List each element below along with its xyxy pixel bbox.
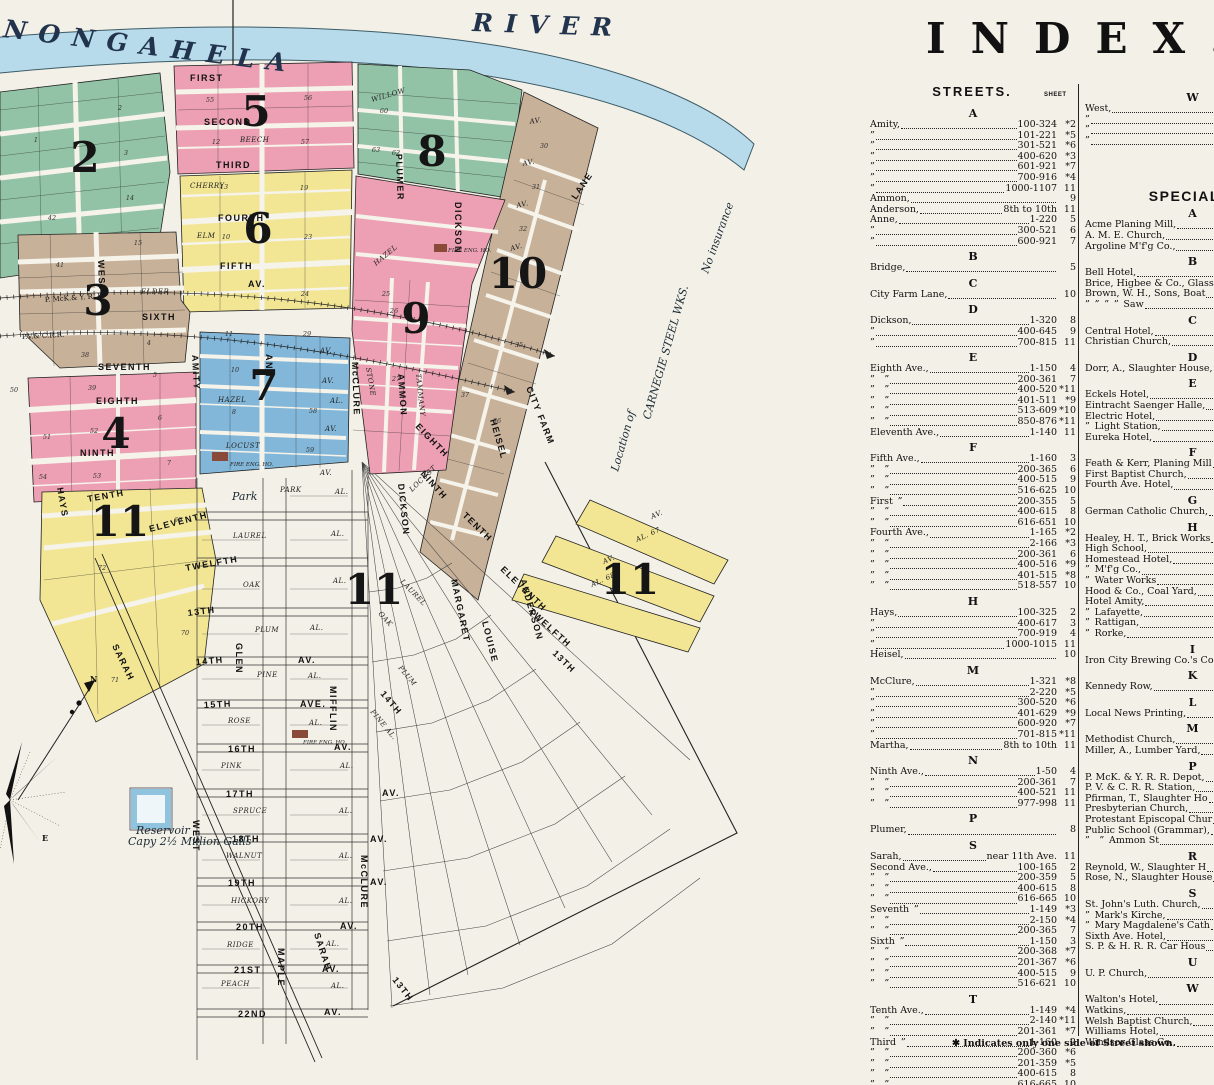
map-label: AL. bbox=[309, 624, 323, 632]
map-label: 62 bbox=[392, 149, 400, 157]
index-row: ”300-5216 bbox=[870, 226, 1076, 237]
index-letter: P bbox=[1085, 760, 1214, 773]
map-label: GLEN bbox=[234, 643, 244, 674]
map-label: DICKSON bbox=[453, 202, 463, 254]
map-label: ELDER bbox=[140, 288, 169, 296]
index-row: ” ”616-66510 bbox=[870, 1080, 1076, 1085]
map-label: 58 bbox=[309, 407, 317, 415]
index-row: ” ”518-55710 bbox=[870, 581, 1076, 592]
map-label: 71 bbox=[111, 676, 119, 684]
map-label: 19 bbox=[300, 184, 308, 192]
map-label: AL. bbox=[338, 807, 352, 815]
index-row: St. John's Luth. Church, bbox=[1085, 900, 1214, 911]
map-label: 12 bbox=[212, 138, 220, 146]
map-label: 7 bbox=[249, 361, 278, 410]
map-label: SARAH bbox=[312, 932, 334, 973]
map-label: 38 bbox=[81, 351, 89, 359]
map-label: SPRUCE bbox=[233, 807, 267, 815]
map-label: 11 bbox=[225, 330, 233, 338]
map-label: HICKORY bbox=[230, 897, 270, 905]
map-label: FIRE ENG. HO. bbox=[302, 740, 346, 746]
map-label: 24 bbox=[300, 290, 309, 298]
index-letter: H bbox=[1085, 521, 1214, 534]
index-letter: T bbox=[870, 993, 1076, 1006]
map-label: 3 bbox=[124, 149, 128, 157]
map-label: MAPLE bbox=[276, 948, 286, 987]
index-row: U. P. Church, bbox=[1085, 969, 1214, 980]
index-row: ”701-815*11 bbox=[870, 730, 1076, 741]
map-label: AL. bbox=[338, 897, 352, 905]
index-row: Christian Church, bbox=[1085, 337, 1214, 348]
map-label: 13TH bbox=[551, 648, 578, 675]
map-label: PEACH bbox=[220, 980, 250, 988]
specials-header: SPECIALS. bbox=[1085, 188, 1214, 204]
index-letter: D bbox=[1085, 351, 1214, 364]
map-label: EIGHTH bbox=[96, 396, 139, 406]
index-row: Fourth Ave. Hotel, bbox=[1085, 480, 1214, 491]
map-label: 54 bbox=[39, 473, 47, 481]
map-label: 39 bbox=[88, 384, 96, 392]
map-label: PLUMER bbox=[394, 154, 406, 201]
index-row: German Catholic Church, bbox=[1085, 507, 1214, 518]
index-row: Bridge,5 bbox=[870, 263, 1076, 274]
map-label: 59 bbox=[306, 446, 314, 454]
map-label: 11 bbox=[91, 497, 149, 546]
map-label: 8 bbox=[417, 127, 446, 176]
index-row: ” Rorke, bbox=[1085, 629, 1214, 640]
map-label: RIDGE bbox=[226, 941, 254, 949]
map-label: 23 bbox=[303, 233, 312, 241]
map-label: 2 bbox=[117, 104, 122, 112]
index-letter: S bbox=[1085, 887, 1214, 900]
map-label: HAZEL bbox=[217, 396, 246, 404]
map-label: E bbox=[42, 833, 48, 843]
map-label: AL. bbox=[325, 940, 339, 948]
column-divider bbox=[1078, 84, 1079, 1036]
map-label: 5 bbox=[153, 371, 157, 379]
index-row: Eintracht Saenger Halle, bbox=[1085, 401, 1214, 412]
map-label: 29 bbox=[302, 330, 311, 338]
index-row: Dorr, A., Slaughter House, bbox=[1085, 364, 1214, 375]
map-label: 26 bbox=[389, 307, 398, 315]
index-row: ”400-6459 bbox=[870, 327, 1076, 338]
map-label: AL. bbox=[330, 982, 344, 990]
index-row: Iron City Brewing Co.'s Co bbox=[1085, 656, 1214, 667]
index-row: ” ”977-99811 bbox=[870, 799, 1076, 810]
map-label: AV. bbox=[649, 509, 664, 522]
specials-index-column: WWest,””” SPECIALS. AAcme Planing Mill,A… bbox=[1085, 88, 1214, 1048]
index-row: ” bbox=[1085, 125, 1214, 136]
index-row: ” ”2-166*3 bbox=[870, 539, 1076, 550]
map-label: WALNUT bbox=[226, 852, 263, 860]
map-label: AL. bbox=[334, 488, 348, 496]
map-label: THIRD bbox=[216, 160, 251, 170]
index-letter: M bbox=[870, 664, 1076, 677]
map-label: AV. bbox=[321, 377, 334, 385]
map-label: Park bbox=[231, 490, 258, 503]
index-row: Hays,100-3252 bbox=[870, 608, 1076, 619]
map-label: 55 bbox=[206, 96, 214, 104]
map-label: FIRE ENG. HO. bbox=[447, 248, 491, 254]
sanborn-map-page: MONONGAHELARIVERFIRSTSECONDTHIRDFOURTHFI… bbox=[0, 0, 1214, 1085]
map-label: 6 bbox=[158, 414, 162, 422]
map-label: 53 bbox=[93, 472, 101, 480]
map-label: 16TH bbox=[228, 744, 256, 754]
map-label: AL. bbox=[339, 762, 353, 770]
map-label: 52 bbox=[90, 427, 98, 435]
map-label: 6 bbox=[243, 204, 272, 253]
map-label: 15TH bbox=[204, 699, 233, 710]
map-label: LOCUST bbox=[225, 442, 261, 450]
index-row: McClure,1-321*8 bbox=[870, 677, 1076, 688]
index-letter: R bbox=[1085, 850, 1214, 863]
index-row: ” ”201-361*7 bbox=[870, 1027, 1076, 1038]
map-label: AV. bbox=[248, 279, 266, 289]
index-row: Kennedy Row, bbox=[1085, 682, 1214, 693]
index-row: ” ”201-367*6 bbox=[870, 958, 1076, 969]
map-label: 21ST bbox=[234, 965, 262, 975]
map-label: 4 bbox=[146, 339, 151, 347]
map-label: 41 bbox=[55, 261, 64, 269]
map-label: AV. bbox=[324, 425, 337, 433]
sheet-column-header: SHEET bbox=[1044, 92, 1067, 98]
map-label: AMITY bbox=[190, 355, 202, 391]
map-label: 8 bbox=[232, 408, 236, 416]
index-row: ”700-916*4 bbox=[870, 173, 1076, 184]
map-label: 2 bbox=[70, 133, 99, 182]
map-label: 30 bbox=[540, 142, 548, 150]
map-label: AV. bbox=[324, 1007, 342, 1017]
map-label: 56 bbox=[304, 94, 312, 102]
map-label: McCLURE bbox=[359, 855, 369, 909]
map-label: AL. bbox=[329, 397, 343, 405]
map-label: PINK bbox=[220, 762, 242, 770]
map-label: 32 bbox=[519, 225, 527, 233]
map-label: SIXTH bbox=[142, 312, 176, 322]
map-label: 5 bbox=[241, 87, 270, 136]
index-letter: U bbox=[1085, 956, 1214, 969]
index-row: ” bbox=[1085, 136, 1214, 147]
index-letter: L bbox=[1085, 696, 1214, 709]
map-label: 11 bbox=[601, 555, 659, 604]
index-letter: C bbox=[870, 277, 1076, 290]
map-label: 13 bbox=[220, 183, 228, 191]
map-label: MIFFLIN bbox=[328, 686, 338, 732]
map-label: FIFTH bbox=[220, 261, 253, 271]
map-label: LAUREL bbox=[232, 532, 267, 540]
index-row: Eureka Hotel, bbox=[1085, 433, 1214, 444]
map-label: 37 bbox=[461, 391, 470, 399]
map-label: RIVER bbox=[471, 8, 625, 42]
map-label: 20TH bbox=[236, 922, 264, 932]
map-label: 15 bbox=[134, 239, 142, 247]
map-label: N bbox=[90, 674, 97, 684]
map-label: 14 bbox=[126, 194, 134, 202]
map-label: ELM bbox=[196, 232, 216, 240]
map-label: 1 bbox=[34, 136, 38, 144]
map-label: 10 bbox=[231, 366, 239, 374]
map-label: ROSE bbox=[227, 717, 251, 725]
map-label: McCLURE bbox=[350, 362, 362, 416]
map-label: 9 bbox=[401, 294, 430, 343]
map-label: 13TH bbox=[390, 975, 415, 1003]
map-label: AV. bbox=[298, 655, 316, 665]
map-label: AL. bbox=[330, 530, 344, 538]
index-row: Rose, N., Slaughter House bbox=[1085, 873, 1214, 884]
index-row: Miller, A., Lumber Yard, bbox=[1085, 746, 1214, 757]
map-label: 36 bbox=[493, 417, 501, 425]
map-label: PINE bbox=[256, 671, 278, 679]
map-label: 72 bbox=[98, 564, 106, 572]
index-row: ”600-9217 bbox=[870, 237, 1076, 248]
map-label: 3 bbox=[83, 276, 112, 325]
map-label: AV. bbox=[340, 921, 358, 931]
map-label: 50 bbox=[10, 386, 18, 394]
index-row: ” ” Ammon St bbox=[1085, 836, 1214, 847]
map-label: OAK bbox=[243, 581, 261, 589]
map-label: BEECH bbox=[239, 136, 270, 144]
map-label: 42 bbox=[47, 214, 56, 222]
map-label: 10 bbox=[222, 233, 230, 241]
map-label: 11 bbox=[345, 565, 403, 614]
index-row: Amity,100-324*2 bbox=[870, 120, 1076, 131]
index-row: West, bbox=[1085, 104, 1214, 115]
map-label: AL. bbox=[307, 672, 321, 680]
map-label: 51 bbox=[43, 433, 51, 441]
index-row: Protestant Episcopal Chur bbox=[1085, 815, 1214, 826]
map-label: FIRE ENG. HO. bbox=[229, 462, 273, 468]
index-row: Argoline M'f'g Co., bbox=[1085, 242, 1214, 253]
map-label: AV. bbox=[370, 834, 388, 844]
map-label: 17TH bbox=[226, 789, 254, 799]
index-row: A. M. E. Church, bbox=[1085, 231, 1214, 242]
map-label: 31 bbox=[532, 183, 540, 191]
map-label: CITY FARM bbox=[524, 385, 556, 446]
index-row: ”700-81511 bbox=[870, 338, 1076, 349]
index-row: S. P. & H. R. R. Car Hous bbox=[1085, 942, 1214, 953]
map-label: 57 bbox=[301, 138, 310, 146]
index-row: ” ” ” ” Saw bbox=[1085, 300, 1214, 311]
map-label: No insurance bbox=[698, 200, 736, 276]
map-label: DICKSON bbox=[396, 483, 411, 536]
map-label: PARK bbox=[279, 486, 302, 494]
map-label: FIRST bbox=[190, 73, 224, 83]
index-row: Martha,8th to 10th11 bbox=[870, 741, 1076, 752]
index-row: Local News Printing, bbox=[1085, 709, 1214, 720]
map-label: CARNEGIE STEEL WKS. bbox=[640, 284, 691, 421]
map-label: AVE. bbox=[300, 699, 326, 709]
index-panel: INDEX. STREETS. SHEET AAmity,100-324*2”1… bbox=[866, 0, 1214, 1085]
map-label: 4 bbox=[101, 409, 130, 458]
map-label: 19TH bbox=[228, 878, 256, 888]
map-label: AV. bbox=[382, 788, 400, 798]
map-label: 10 bbox=[489, 249, 547, 298]
map-label: 63 bbox=[372, 146, 380, 154]
map-label: AL. bbox=[338, 852, 352, 860]
index-letter: C bbox=[1085, 314, 1214, 327]
streets-index-column: AAmity,100-324*2”101-221*5”301-521*6”400… bbox=[870, 104, 1076, 1085]
map-label: 22ND bbox=[238, 1009, 267, 1019]
index-row: Eleventh Ave.,1-14011 bbox=[870, 428, 1076, 439]
map-label: AV. bbox=[319, 347, 332, 355]
index-row: Plumer,8 bbox=[870, 825, 1076, 836]
map-label: PLUM bbox=[254, 626, 279, 634]
map-label: AL. bbox=[308, 719, 322, 727]
index-row: ” bbox=[1085, 115, 1214, 126]
index-row: ” ”516-62110 bbox=[870, 979, 1076, 990]
map-label: 69 bbox=[174, 516, 182, 524]
index-row: Heisel,10 bbox=[870, 650, 1076, 661]
map-label: 35 bbox=[515, 341, 523, 349]
map-label: SEVENTH bbox=[98, 362, 151, 372]
map-label: 27 bbox=[391, 375, 401, 383]
index-row: City Farm Lane,10 bbox=[870, 290, 1076, 301]
map-label: AV. bbox=[319, 469, 332, 477]
map-label: Capy 2½ Million Galls bbox=[128, 835, 252, 848]
map-label: AV. bbox=[370, 877, 388, 887]
index-letter: I bbox=[1085, 643, 1214, 656]
map-label: 60 bbox=[380, 107, 388, 115]
map-label: 25 bbox=[381, 290, 390, 298]
map-label: Location of bbox=[608, 407, 639, 473]
index-footnote: ✱ Indicates only one side of Street show… bbox=[952, 1038, 1176, 1049]
index-title: INDEX. bbox=[926, 14, 1214, 63]
map-label: 70 bbox=[181, 629, 189, 637]
sanborn-map: MONONGAHELARIVERFIRSTSECONDTHIRDFOURTHFI… bbox=[0, 0, 868, 1085]
map-label: PLUM bbox=[396, 663, 418, 688]
